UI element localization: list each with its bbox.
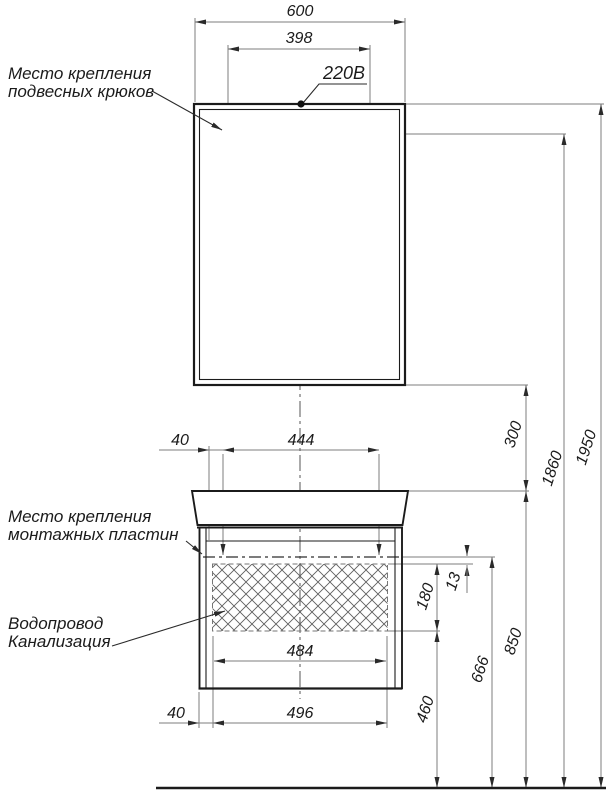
power-label: 220В bbox=[322, 63, 365, 83]
power-point-dot bbox=[297, 100, 304, 107]
dim-484: 484 bbox=[287, 643, 314, 660]
dim-13: 13 bbox=[443, 570, 465, 592]
plumbing-label-line2: Канализация bbox=[8, 632, 111, 651]
dim-300: 300 bbox=[502, 419, 526, 450]
dim-600: 600 bbox=[287, 3, 314, 20]
dim-1860: 1860 bbox=[539, 449, 566, 488]
dim-444: 444 bbox=[288, 432, 315, 449]
annotation-texts: Место крепления подвесных крюков Место к… bbox=[8, 64, 179, 651]
dim-398: 398 bbox=[286, 30, 313, 47]
installation-diagram: 600 398 220В 40 444 484 40 496 300 850 6… bbox=[0, 0, 608, 800]
dim-850: 850 bbox=[502, 626, 526, 657]
dim-40-bottom: 40 bbox=[167, 705, 185, 722]
washbasin bbox=[192, 491, 408, 525]
plates-label-line2: монтажных пластин bbox=[8, 525, 179, 544]
diagram-canvas: 600 398 220В 40 444 484 40 496 300 850 6… bbox=[0, 0, 608, 800]
dim-460: 460 bbox=[414, 694, 438, 725]
dim-496: 496 bbox=[287, 705, 314, 722]
mirror-outer-frame bbox=[194, 104, 405, 385]
plates-label-line1: Место крепления bbox=[8, 507, 151, 526]
furniture bbox=[156, 104, 606, 788]
hooks-label-line1: Место крепления bbox=[8, 64, 151, 83]
dim-666: 666 bbox=[469, 654, 493, 685]
plumbing-label-line1: Водопровод bbox=[8, 614, 103, 633]
hooks-label-line2: подвесных крюков bbox=[8, 82, 154, 101]
plumbing-zone-hatch bbox=[213, 564, 388, 631]
dim-40-top: 40 bbox=[171, 432, 189, 449]
dim-180: 180 bbox=[414, 581, 438, 612]
plumbing-leader bbox=[112, 611, 225, 646]
dim-1950: 1950 bbox=[573, 428, 600, 467]
power-leader bbox=[303, 84, 367, 103]
